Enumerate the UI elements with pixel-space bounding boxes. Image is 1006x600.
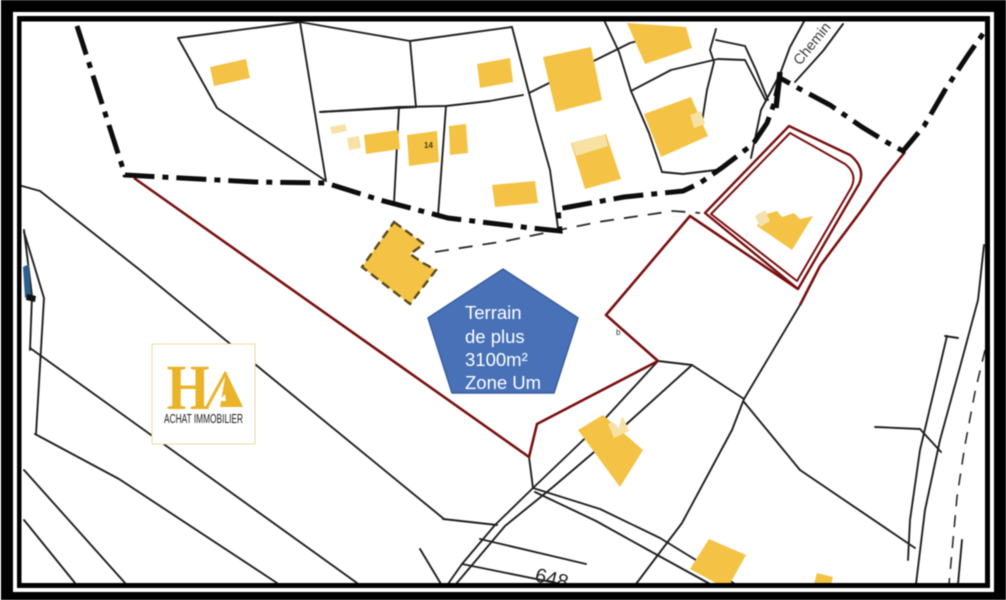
svg-text:Zone Um: Zone Um: [465, 372, 541, 393]
svg-text:de plus: de plus: [465, 326, 525, 347]
svg-text:Terrain: Terrain: [465, 302, 522, 323]
svg-text:b: b: [616, 328, 621, 337]
svg-text:3100m²: 3100m²: [465, 349, 528, 370]
svg-text:ACHAT IMMOBILIER: ACHAT IMMOBILIER: [164, 411, 243, 426]
svg-text:14: 14: [424, 141, 433, 150]
